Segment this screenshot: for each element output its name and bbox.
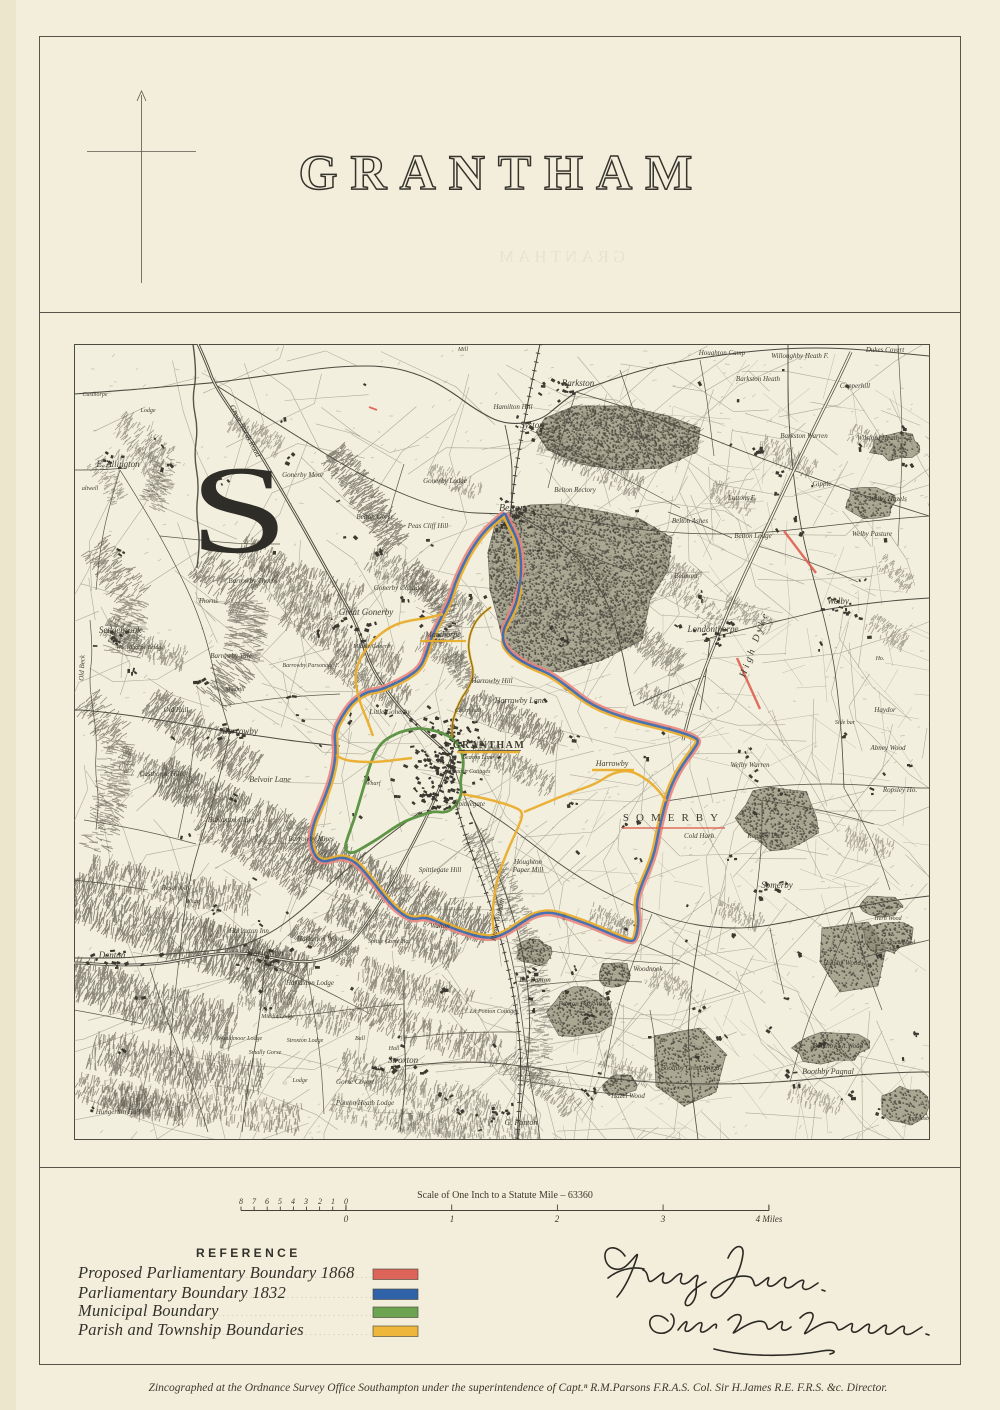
svg-text:Hamilton Hill: Hamilton Hill bbox=[492, 403, 532, 411]
svg-text:2: 2 bbox=[318, 1197, 322, 1206]
svg-text:Harlaxton Clays: Harlaxton Clays bbox=[207, 816, 255, 824]
svg-text:Great Gonerby: Great Gonerby bbox=[339, 607, 393, 617]
svg-text:0: 0 bbox=[344, 1214, 349, 1224]
svg-text:Proposed Parliamentary Boundar: Proposed Parliamentary Boundary 1868 bbox=[77, 1263, 355, 1282]
svg-text:Humby Wood: Humby Wood bbox=[822, 959, 861, 967]
svg-text:Gonerby Cottage: Gonerby Cottage bbox=[374, 584, 422, 592]
svg-text:Beacon Cottages: Beacon Cottages bbox=[450, 769, 491, 775]
svg-text:Luttons F.: Luttons F. bbox=[727, 494, 756, 502]
svg-text:1: 1 bbox=[331, 1197, 335, 1206]
svg-text:Barkston Warren: Barkston Warren bbox=[780, 432, 828, 440]
svg-text:Welby: Welby bbox=[827, 596, 849, 606]
svg-text:Wharf: Wharf bbox=[366, 780, 382, 787]
svg-text:Old Beck: Old Beck bbox=[77, 654, 86, 681]
svg-text:Spittlegate Hill: Spittlegate Hill bbox=[419, 866, 462, 874]
svg-text:Barrowby Parsonage F.: Barrowby Parsonage F. bbox=[282, 663, 339, 669]
svg-text:Barrowby Vale: Barrowby Vale bbox=[210, 652, 252, 660]
svg-text:Old Hall: Old Hall bbox=[164, 706, 189, 714]
svg-text:Ball: Ball bbox=[355, 1036, 365, 1042]
svg-text:Mill: Mill bbox=[457, 347, 468, 353]
svg-text:Hazel Wood: Hazel Wood bbox=[610, 1092, 645, 1100]
svg-text:Syston: Syston bbox=[520, 420, 544, 430]
svg-text:Copperhill: Copperhill bbox=[840, 382, 870, 390]
svg-text:4 Miles: 4 Miles bbox=[756, 1214, 783, 1224]
svg-text:Stroxton Lodge: Stroxton Lodge bbox=[287, 1038, 324, 1044]
svg-text:Cherryholt: Cherryholt bbox=[455, 708, 482, 714]
svg-text:Casthorpe Hills: Casthorpe Hills bbox=[140, 770, 185, 778]
svg-text:Barrowby Thorns: Barrowby Thorns bbox=[228, 577, 278, 585]
svg-text:Harrowby Hill: Harrowby Hill bbox=[470, 677, 512, 685]
svg-text:8: 8 bbox=[239, 1197, 243, 1206]
svg-text:Denton: Denton bbox=[98, 950, 126, 960]
svg-text:Hall: Hall bbox=[388, 1046, 400, 1052]
svg-text:Hogtree Wood: Hogtree Wood bbox=[880, 940, 916, 946]
svg-text:Lit. Ponton: Lit. Ponton bbox=[518, 976, 551, 984]
svg-text:Wilsford Heath: Wilsford Heath bbox=[857, 434, 900, 442]
svg-text:Abney Wood: Abney Wood bbox=[870, 744, 906, 752]
svg-text:Ingoldsby: Ingoldsby bbox=[907, 1116, 932, 1122]
svg-text:Gipple: Gipple bbox=[812, 480, 831, 488]
svg-text:Sedgebrook: Sedgebrook bbox=[99, 625, 142, 635]
svg-text:Lit Ponton Cottages: Lit Ponton Cottages bbox=[469, 1009, 519, 1015]
svg-text:Stroxton: Stroxton bbox=[388, 1055, 419, 1065]
svg-text:Boothby Lit.Wood: Boothby Lit.Wood bbox=[813, 1042, 864, 1050]
svg-text:6: 6 bbox=[265, 1197, 269, 1206]
svg-text:Gonerby Moor: Gonerby Moor bbox=[282, 471, 324, 479]
svg-text:Side bar: Side bar bbox=[835, 720, 856, 726]
svg-text:Hern Wood: Hern Wood bbox=[873, 916, 902, 922]
svg-text:Harrowby Lane: Harrowby Lane bbox=[494, 696, 546, 705]
svg-text:Dukes Covert: Dukes Covert bbox=[865, 346, 905, 354]
svg-text:Belton Lodge: Belton Lodge bbox=[734, 532, 772, 540]
svg-text:Harlaxton Lodge: Harlaxton Lodge bbox=[285, 979, 334, 987]
svg-text:GRANTHAM: GRANTHAM bbox=[495, 247, 625, 266]
svg-text:Beacon Lane: Beacon Lane bbox=[462, 755, 494, 761]
svg-text:REFERENCE: REFERENCE bbox=[196, 1246, 301, 1260]
svg-text:Barrowby: Barrowby bbox=[222, 726, 258, 736]
svg-text:Barkston Heath: Barkston Heath bbox=[736, 375, 781, 383]
svg-text:Walton: Walton bbox=[430, 922, 450, 930]
svg-text:Houghton Camp: Houghton Camp bbox=[698, 349, 746, 357]
svg-text:Ponton Heath Lodge: Ponton Heath Lodge bbox=[335, 1099, 394, 1107]
svg-text:Belton Gorse: Belton Gorse bbox=[356, 513, 393, 521]
svg-text:Welby Warren: Welby Warren bbox=[730, 761, 770, 769]
svg-text:4: 4 bbox=[291, 1197, 295, 1206]
svg-text:Willoughby Heath F.: Willoughby Heath F. bbox=[771, 352, 829, 360]
svg-text:Belton Rectory: Belton Rectory bbox=[554, 486, 597, 494]
svg-text:Parliamentary Boundary 1832: Parliamentary Boundary 1832 bbox=[77, 1283, 286, 1302]
svg-text:Spitile Gorse Ho.: Spitile Gorse Ho. bbox=[368, 939, 410, 945]
svg-text:Paper Mill: Paper Mill bbox=[512, 866, 544, 874]
svg-text:Belvoir Lane: Belvoir Lane bbox=[249, 775, 291, 784]
svg-text:Cold Harb.: Cold Harb. bbox=[684, 832, 716, 840]
svg-text:Municipal Boundary: Municipal Boundary bbox=[77, 1301, 219, 1320]
svg-text:Lodge: Lodge bbox=[292, 1078, 308, 1084]
svg-text:Boothby Great Wood: Boothby Great Wood bbox=[661, 1064, 720, 1072]
svg-text:3: 3 bbox=[303, 1197, 308, 1206]
svg-text:Wharf: Wharf bbox=[186, 898, 202, 905]
svg-text:Welby Pasture: Welby Pasture bbox=[852, 530, 892, 538]
svg-text:Lodge: Lodge bbox=[140, 408, 156, 414]
svg-text:3: 3 bbox=[660, 1214, 666, 1224]
svg-text:Harlaxton Inn: Harlaxton Inn bbox=[228, 927, 269, 935]
svg-text:Peas Cliff Hill: Peas Cliff Hill bbox=[407, 522, 449, 530]
svg-text:Zincographed at the Ordnance S: Zincographed at the Ordnance Survey Offi… bbox=[149, 1382, 888, 1394]
svg-text:Hungerton Hall: Hungerton Hall bbox=[95, 1108, 141, 1116]
svg-text:Ho.: Ho. bbox=[875, 656, 885, 662]
svg-text:Ropsley Ho.: Ropsley Ho. bbox=[882, 786, 917, 794]
svg-text:Gonerby Lodge: Gonerby Lodge bbox=[423, 477, 467, 485]
svg-text:Barkston: Barkston bbox=[562, 378, 595, 388]
svg-text:Thorns: Thorns bbox=[198, 597, 218, 605]
svg-text:Haydor: Haydor bbox=[873, 706, 896, 714]
svg-text:2: 2 bbox=[555, 1214, 560, 1224]
svg-text:1: 1 bbox=[450, 1214, 455, 1224]
svg-text:altwell: altwell bbox=[82, 486, 99, 492]
svg-text:SOMERBY: SOMERBY bbox=[623, 812, 725, 824]
svg-text:Woolsthorpe Bridge: Woolsthorpe Bridge bbox=[116, 645, 164, 651]
svg-text:Woodnook: Woodnook bbox=[633, 965, 663, 973]
svg-text:Gorse Covert: Gorse Covert bbox=[336, 1078, 375, 1086]
svg-text:Manthorpe: Manthorpe bbox=[424, 630, 461, 639]
svg-text:Harrowby: Harrowby bbox=[595, 759, 629, 768]
svg-text:Reservoir: Reservoir bbox=[160, 884, 188, 892]
svg-text:Londonthorpe: Londonthorpe bbox=[686, 624, 738, 634]
svg-text:Belton: Belton bbox=[499, 503, 525, 514]
svg-text:Boothby Pagnal: Boothby Pagnal bbox=[802, 1067, 855, 1076]
svg-text:Middle Gonerby: Middle Gonerby bbox=[352, 644, 393, 650]
svg-text:Barrowby Mires: Barrowby Mires bbox=[288, 835, 334, 843]
svg-text:GRANTHAM: GRANTHAM bbox=[453, 740, 526, 751]
svg-text:0: 0 bbox=[344, 1197, 348, 1206]
svg-text:Spittlegate: Spittlegate bbox=[455, 800, 485, 808]
svg-text:Middle Lodge: Middle Lodge bbox=[260, 1014, 295, 1020]
svg-text:GRANTHAM: GRANTHAM bbox=[299, 144, 706, 200]
svg-text:5: 5 bbox=[278, 1197, 282, 1206]
svg-text:Harlaxton: Harlaxton bbox=[246, 948, 284, 958]
svg-text:Little Gonerby: Little Gonerby bbox=[368, 708, 411, 716]
svg-text:Houghton: Houghton bbox=[513, 858, 543, 866]
svg-text:Wauldmoor Lodge: Wauldmoor Lodge bbox=[218, 1036, 263, 1042]
svg-text:Mudhill: Mudhill bbox=[225, 687, 245, 693]
svg-text:E. Allington: E. Allington bbox=[95, 459, 140, 469]
svg-text:Casthorpe: Casthorpe bbox=[82, 392, 107, 398]
svg-text:S: S bbox=[189, 440, 289, 579]
svg-text:Welby Hazels: Welby Hazels bbox=[869, 495, 907, 503]
svg-text:Ropsley Plat: Ropsley Plat bbox=[746, 832, 784, 840]
svg-text:Belton Ashes: Belton Ashes bbox=[672, 517, 709, 525]
svg-text:Smally Gorse: Smally Gorse bbox=[249, 1050, 282, 1056]
svg-text:Parish and Township Boundaries: Parish and Township Boundaries bbox=[77, 1320, 304, 1339]
svg-text:Harlaxton Wood: Harlaxton Wood bbox=[296, 935, 344, 943]
svg-text:Scale of One Inch to a Statute: Scale of One Inch to a Statute Mile – 63… bbox=[417, 1190, 593, 1201]
svg-text:Ponton Park Wood: Ponton Park Wood bbox=[557, 1000, 612, 1008]
svg-text:Belmont: Belmont bbox=[674, 572, 698, 580]
svg-text:G. Ponton: G. Ponton bbox=[505, 1118, 538, 1127]
svg-text:Somerby: Somerby bbox=[761, 880, 793, 890]
